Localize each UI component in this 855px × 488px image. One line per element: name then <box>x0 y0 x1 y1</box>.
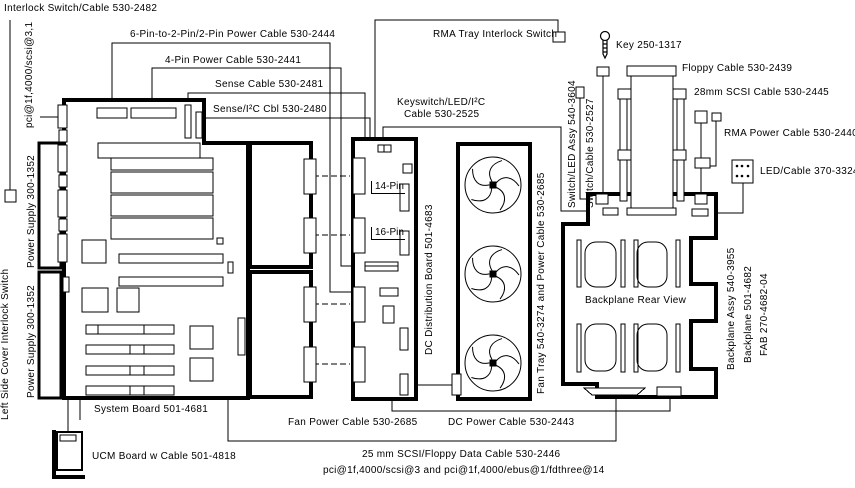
power-supply-2-box <box>39 272 61 398</box>
label-switch-cable: Switch/Cable 530-2527 <box>585 98 596 208</box>
label-left-cover-interlock: Left Side Cover Interlock Switch <box>0 269 11 420</box>
label-power-supply-1: Power Supply 300-1352 <box>26 155 37 268</box>
sense-connector <box>185 105 191 138</box>
dc-power-connector <box>400 328 408 350</box>
power-connector-6pin <box>97 108 127 118</box>
label-keyswitch-1: Keyswitch/LED/I²C <box>397 97 485 108</box>
ucm-board <box>54 430 85 477</box>
key-icon <box>601 32 610 59</box>
label-key: Key 250-1317 <box>616 40 682 51</box>
label-14pin: 14-Pin <box>371 181 405 194</box>
label-pci-paths: pci@1f,4000/scsi@3 and pci@1f,4000/ebus@… <box>323 465 605 476</box>
label-interlock-cable: Interlock Switch/Cable 530-2482 <box>4 3 157 14</box>
label-backplane-num: Backplane 501-4682 <box>743 266 754 363</box>
label-four-pin-cable: 4-Pin Power Cable 530-2441 <box>165 55 301 66</box>
label-keyswitch-2: Cable 530-2525 <box>404 109 479 120</box>
sense-i2c-connector <box>196 112 202 138</box>
led-connector <box>732 160 753 183</box>
keyswitch-box <box>597 67 609 76</box>
scsi-connector-a <box>695 111 707 123</box>
fan-power-connector-tray <box>452 374 461 395</box>
label-system-board: System Board 501-4681 <box>94 404 208 415</box>
label-rma-interlock: RMA Tray Interlock Switch <box>433 29 557 40</box>
label-led-cable: LED/Cable 370-3324 <box>760 166 855 177</box>
rma-interlock-connector <box>403 164 412 173</box>
power-connector-4pin <box>131 108 176 118</box>
left-cover-interlock-switch-box <box>5 190 16 202</box>
label-floppy-cable: Floppy Cable 530-2439 <box>682 63 792 74</box>
label-sense-i2c-cable: Sense/I²C Cbl 530-2480 <box>213 104 327 115</box>
label-pci-scsi31: pci@1f,4000/scsi@3,1 <box>24 22 35 128</box>
tray-body <box>631 76 673 208</box>
label-16pin: 16-Pin <box>371 227 405 240</box>
label-scsi-floppy-cable: 25 mm SCSI/Floppy Data Cable 530-2446 <box>362 449 560 460</box>
label-sense-cable: Sense Cable 530-2481 <box>215 79 323 90</box>
backplane-power-connector <box>657 387 681 396</box>
power-supply-1-body <box>250 143 311 267</box>
fan-power-connector-dc <box>400 374 408 395</box>
label-ucm-board: UCM Board w Cable 501-4818 <box>92 451 236 462</box>
label-scsi28-cable: 28mm SCSI Cable 530-2445 <box>694 87 829 98</box>
floppy-cable-connector <box>627 66 676 76</box>
cabling-diagram: Interlock Switch/Cable 530-2482 6-Pin-to… <box>0 0 855 488</box>
power-supply-2-body <box>250 272 311 397</box>
scsi-floppy-connector <box>238 318 245 355</box>
backplane-edge-connector <box>584 388 645 395</box>
label-fab: FAB 270-4682-04 <box>759 273 770 356</box>
tray-left-rail <box>620 92 627 201</box>
scsi-connector-b <box>712 113 721 121</box>
label-six-pin-cable: 6-Pin-to-2-Pin/2-Pin Power Cable 530-244… <box>130 29 335 40</box>
label-fan-tray: Fan Tray 540-3274 and Power Cable 530-26… <box>536 172 547 394</box>
label-backplane-assy: Backplane Assy 540-3955 <box>726 247 737 370</box>
label-fan-power-cable: Fan Power Cable 530-2685 <box>288 417 418 428</box>
label-rma-power-cable: RMA Power Cable 530-2440 <box>724 128 855 139</box>
label-dc-distribution-board: DC Distribution Board 501-4683 <box>424 204 435 355</box>
tray-right-rail <box>677 92 684 201</box>
rma-power-connector <box>695 158 710 168</box>
label-power-supply-2: Power Supply 300-1352 <box>26 285 37 398</box>
label-dc-power-cable: DC Power Cable 530-2443 <box>448 417 574 428</box>
label-backplane-rear-view: Backplane Rear View <box>585 295 686 306</box>
label-switch-led-assy: Switch/LED Assy 540-3604 <box>567 80 578 208</box>
